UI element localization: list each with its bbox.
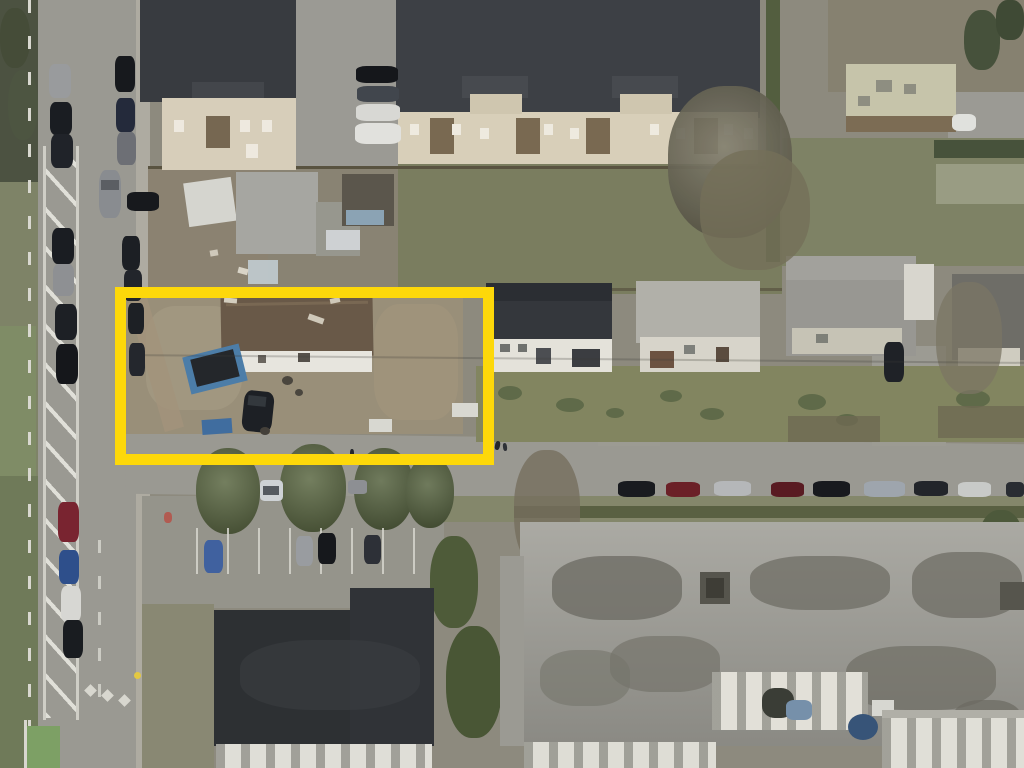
conifer-northeast-corner: [964, 10, 1000, 70]
fire-hydrant: [164, 512, 172, 523]
house-big-garage-white: [904, 264, 934, 320]
car-driving: [99, 170, 121, 218]
hedge-before-apartments: [514, 506, 1024, 518]
courtyard-tarp: [786, 700, 812, 720]
shrub-frontyard-1: [498, 386, 522, 400]
townhouse-west-panel: [206, 116, 230, 148]
van-gray-by-conifers: [348, 480, 367, 494]
tree-bare-northeast: [936, 282, 1002, 394]
house-white-door: [536, 348, 551, 364]
townhouse-center-panel-2: [516, 118, 540, 154]
greenhouse: [248, 260, 278, 284]
house-white-window-1: [500, 344, 510, 352]
car-west-col-white: [61, 586, 81, 622]
townhouse-center-panel-1: [430, 118, 454, 154]
road-yellow-dot: [134, 672, 141, 679]
car-ew-road-9-dark-partial: [1006, 482, 1024, 497]
car-east-col-gray: [117, 132, 136, 165]
house-big-window: [816, 334, 828, 343]
car-white-northeast: [952, 114, 976, 131]
car-west-col-dark-5: [56, 344, 78, 384]
car-angled-driveway: [127, 192, 159, 211]
townhouse-west-window-1: [174, 120, 184, 132]
car-ew-road-3-silver: [714, 481, 751, 496]
house-big-roof-light: [786, 256, 916, 280]
roof-chimney-1-inner: [706, 578, 724, 598]
house-northeast-brown-band: [846, 116, 956, 132]
shed-white: [183, 177, 237, 227]
aerial-map-canvas[interactable]: [0, 0, 1024, 768]
townhouse-center-window-6: [650, 124, 659, 135]
car-east-col-navy: [116, 98, 135, 132]
car-ew-road-1-black: [618, 481, 655, 497]
shrub-frontyard-6: [798, 394, 826, 410]
townhouse-west-window-2: [240, 120, 250, 132]
car-lot-blue: [204, 540, 223, 573]
roof-chimney-2: [1000, 582, 1024, 610]
townhouse-west-window-4: [246, 144, 258, 158]
shrub-frontyard-5: [700, 408, 724, 420]
townhouse-west-window-3: [262, 120, 272, 132]
courtyard-blue-dome: [848, 714, 878, 740]
car-ew-road-5-black: [813, 481, 850, 497]
car-west-col-dark-4: [55, 304, 77, 340]
van-white-by-conifers-top: [263, 486, 279, 495]
townhouse-center-window-1: [410, 124, 419, 135]
roof-stain-6: [540, 650, 630, 706]
townhouse-center-gable-1: [470, 94, 522, 114]
car-ew-road-8-white: [958, 482, 991, 497]
property-highlight-rectangle[interactable]: [115, 287, 494, 465]
car-west-col-blue: [59, 550, 79, 584]
garden-plot-northeast: [936, 164, 1024, 204]
bike-lane-green: [26, 726, 60, 768]
house-gray-mid-leanto: [326, 230, 360, 250]
townhouse-center-window-5: [570, 128, 579, 139]
house-white-window-2: [518, 344, 527, 352]
tree-northwest-1: [0, 8, 30, 68]
car-ew-road-4-darkred: [771, 482, 804, 497]
townhouse-center-window-2: [452, 124, 461, 135]
car-ew-road-2-red: [666, 482, 700, 497]
conifer-row-4: [406, 456, 454, 528]
car-lot-gray: [296, 536, 313, 566]
apartment-right-facade-east: [882, 710, 1024, 768]
house-grayroof-window: [684, 345, 695, 354]
house-gray-mid-roof: [236, 172, 318, 254]
car-stall-north-black: [356, 66, 398, 83]
car-west-col-silver-1: [49, 64, 71, 98]
tree-bare-large-b: [700, 150, 810, 270]
shrub-frontyard-4: [660, 390, 682, 402]
apartment-right-facade-east-roofline: [882, 710, 1024, 718]
car-west-col-dark-1: [50, 102, 72, 135]
car-ew-road-6-silverblue: [864, 481, 905, 497]
car-lot-dark: [364, 535, 381, 564]
brush-northeast-top: [996, 0, 1024, 40]
conifer-between-apartments-2: [446, 626, 502, 738]
shrub-frontyard-2: [556, 398, 584, 412]
car-west-col-dark-2: [51, 134, 73, 168]
bike-lane-dashes: [28, 0, 31, 768]
car-west-col-red: [58, 502, 79, 542]
garden-bed-2: [938, 406, 1024, 438]
car-driving-windshield: [101, 180, 119, 190]
center-lane-dashes: [98, 540, 101, 716]
car-east-col-dark-2: [122, 236, 140, 270]
townhouse-center-window-4: [544, 124, 553, 135]
apartment-west-grass: [142, 604, 214, 768]
van-stall-north-white: [355, 123, 401, 144]
roof-stain-2: [750, 556, 890, 610]
house-white-roof-shade: [486, 283, 612, 301]
car-east-col-black-1: [115, 56, 135, 92]
townhouse-center-gable-2: [620, 94, 672, 114]
roof-stain-1: [552, 556, 682, 620]
car-lot-black: [318, 533, 336, 564]
garden-bed-1: [788, 416, 880, 442]
bike-lane-green-edge: [24, 720, 27, 768]
apartment-right-facade-west: [524, 742, 716, 768]
house-northeast-window-3: [858, 96, 870, 106]
car-ew-road-7-dark: [914, 481, 948, 496]
car-west-col-black: [63, 620, 83, 658]
townhouse-center-panel-3: [586, 118, 610, 154]
house-northeast-window-2: [904, 84, 916, 94]
car-stall-north-gray: [357, 86, 399, 102]
townhouse-center-window-3: [480, 128, 489, 139]
apartment-right-roof-west: [500, 556, 524, 746]
house-grayroof-roof: [636, 281, 760, 343]
car-stall-north-white: [356, 104, 400, 121]
shed-tarp-blue: [346, 210, 384, 225]
car-west-col-dark-3: [52, 228, 74, 264]
tree-northwest-2: [8, 70, 38, 140]
apartment-left-facade: [216, 744, 432, 768]
car-west-col-silver-2: [53, 264, 74, 296]
apartment-left-roof-sheen: [240, 640, 420, 710]
shrub-frontyard-3: [606, 408, 624, 418]
house-northeast-window-1: [876, 80, 892, 92]
hedge-northeast: [934, 140, 1024, 158]
